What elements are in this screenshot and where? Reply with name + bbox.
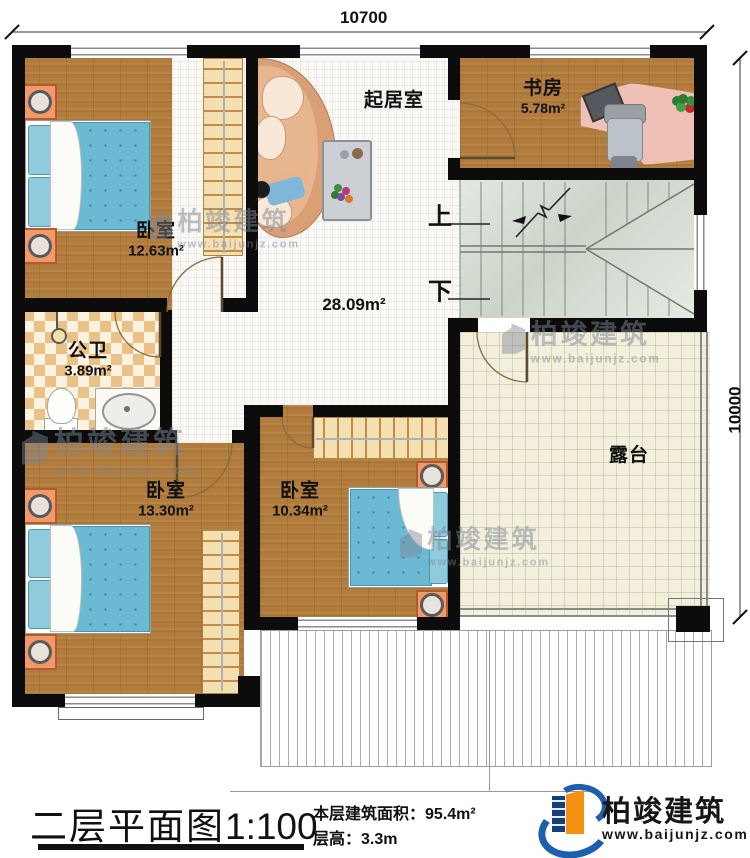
floor-plan: 10700 10000 卧室 12.63m² 起居室 28.09m² 书房 5.… <box>0 0 750 858</box>
floor-area-line: 本层建筑面积：95.4m² <box>313 803 476 828</box>
room-name: 卧室 <box>272 480 328 502</box>
brand-logo: 柏竣建筑 www.baijunjz.com <box>536 784 748 854</box>
room-area: 13.30m² <box>138 502 194 519</box>
room-area: 12.63m² <box>128 242 184 259</box>
door-arc-bedroom-bm <box>282 417 313 448</box>
room-area: 5.78m² <box>521 100 565 116</box>
plan-linework <box>0 0 750 858</box>
room-name: 书房 <box>521 78 565 100</box>
title-underline <box>38 844 304 850</box>
floor-area-value: 95.4m² <box>425 806 476 823</box>
dimension-right: 10000 <box>726 386 746 433</box>
room-area: 3.89m² <box>64 362 112 379</box>
door-arc-bathroom <box>115 312 160 357</box>
room-area: 28.09m² <box>322 295 385 315</box>
plan-title: 二层平面图 <box>30 806 225 847</box>
dimension-lines <box>12 32 740 617</box>
floor-height-line: 层高：3.3m <box>313 828 476 853</box>
dimension-top: 10700 <box>340 8 387 28</box>
floor-height-value: 3.3m <box>361 831 397 848</box>
room-area: 10.34m² <box>272 502 328 519</box>
brand-website: www.baijunjz.com <box>602 826 748 842</box>
room-label-study: 书房 5.78m² <box>521 78 565 116</box>
floor-area-label: 本层建筑面积： <box>313 806 425 823</box>
room-label-terrace: 露台 <box>609 445 649 467</box>
door-arc-bedroom-tl <box>167 257 222 312</box>
plan-specs: 本层建筑面积：95.4m² 层高：3.3m <box>313 803 476 853</box>
stairs-up-label: 上 <box>428 197 452 232</box>
plan-scale: 1:100 <box>225 806 318 847</box>
room-area-living: 28.09m² <box>322 295 385 315</box>
room-label-bedroom-bl: 卧室 13.30m² <box>138 480 194 519</box>
floor-height-label: 层高： <box>313 831 361 848</box>
room-label-bedroom-tl: 卧室 12.63m² <box>128 220 184 259</box>
room-name: 卧室 <box>138 480 194 502</box>
door-arc-study <box>460 103 515 158</box>
room-name: 公卫 <box>64 340 112 362</box>
room-label-living: 起居室 <box>364 90 424 112</box>
door-arc-terrace <box>477 332 527 382</box>
title-block: 二层平面图1:100 <box>30 796 318 850</box>
room-label-bedroom-bm: 卧室 10.34m² <box>272 480 328 519</box>
stair-arrow <box>516 188 570 237</box>
room-label-bathroom: 公卫 3.89m² <box>64 340 112 379</box>
room-name: 起居室 <box>364 90 424 112</box>
room-name: 露台 <box>609 445 649 467</box>
brand-name: 柏竣建筑 <box>602 788 726 830</box>
stair-label-lines <box>448 224 490 299</box>
stair-landing-lines <box>460 184 694 314</box>
stairs-down-label: 下 <box>428 272 452 307</box>
room-name: 卧室 <box>128 220 184 242</box>
